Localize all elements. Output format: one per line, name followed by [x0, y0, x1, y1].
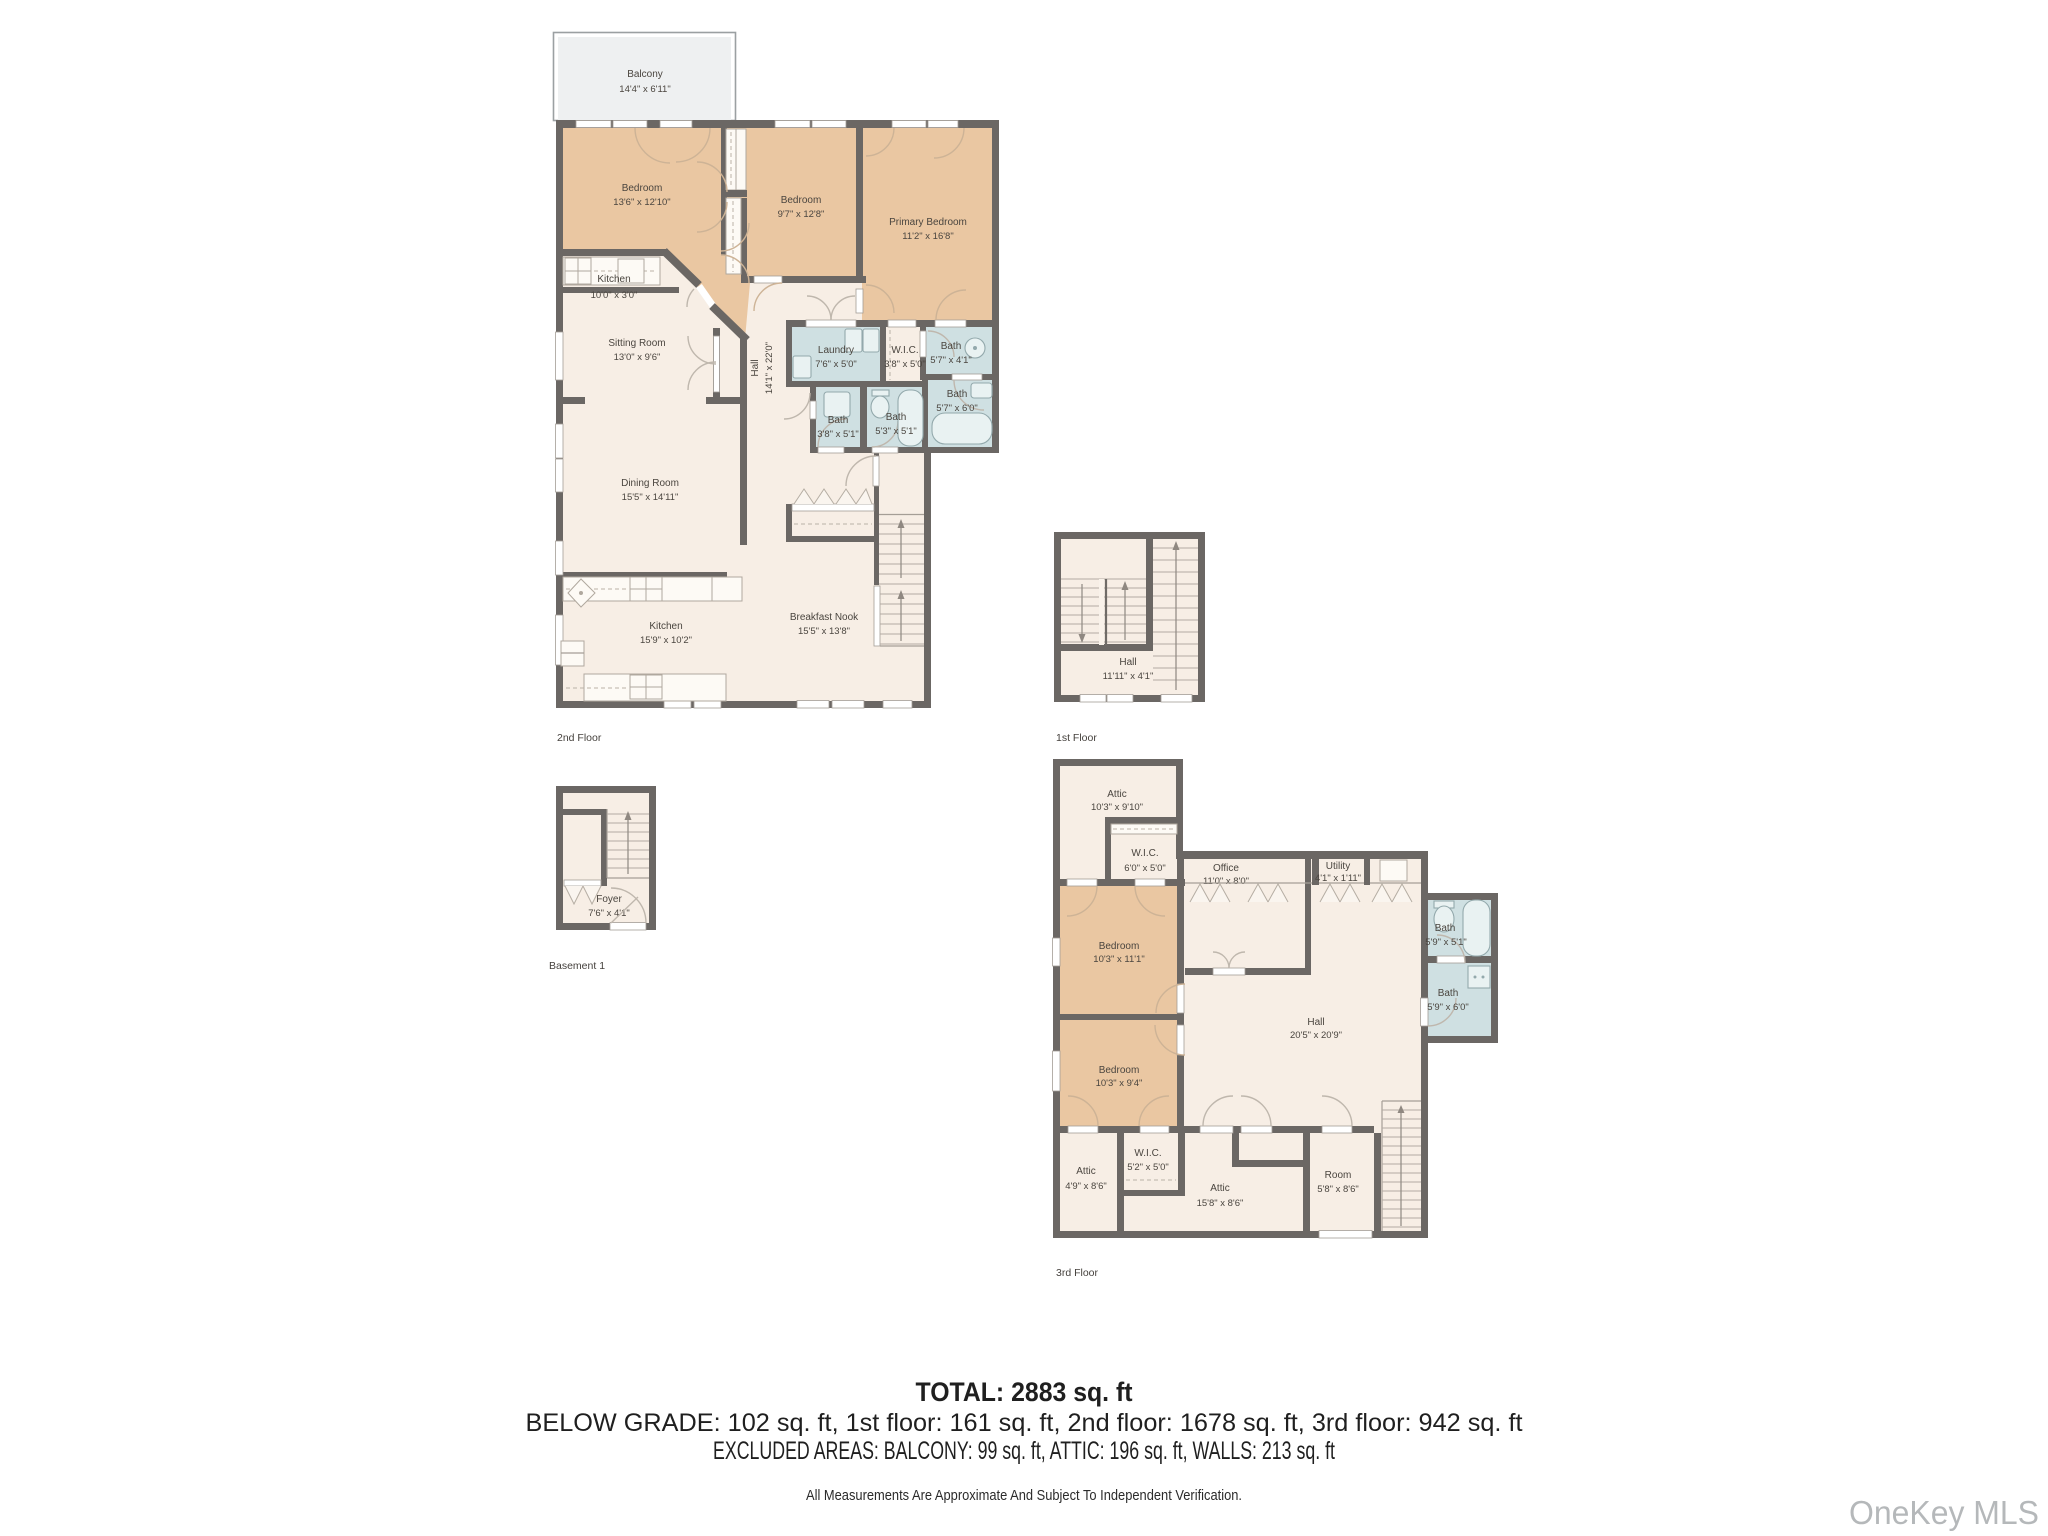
svg-text:Attic: Attic: [1076, 1166, 1095, 1177]
svg-text:13'0" x 9'6": 13'0" x 9'6": [614, 352, 661, 363]
svg-text:Bath: Bath: [941, 341, 962, 352]
svg-text:1st Floor: 1st Floor: [1056, 732, 1097, 744]
svg-text:5'7" x 6'0": 5'7" x 6'0": [936, 403, 978, 414]
svg-text:14'1" x 22'0": 14'1" x 22'0": [764, 342, 775, 394]
svg-text:5'7" x 4'1": 5'7" x 4'1": [930, 355, 972, 366]
svg-text:Room: Room: [1325, 1170, 1352, 1181]
svg-text:TOTAL: 2883 sq. ft: TOTAL: 2883 sq. ft: [916, 1377, 1133, 1407]
svg-text:Dining Room: Dining Room: [621, 478, 679, 489]
svg-text:Basement 1: Basement 1: [549, 960, 605, 972]
svg-text:5'9" x 5'1": 5'9" x 5'1": [1425, 937, 1467, 948]
svg-text:3'8" x 5'1": 3'8" x 5'1": [817, 429, 859, 440]
svg-text:15'9" x 10'2": 15'9" x 10'2": [640, 635, 692, 646]
svg-text:Bath: Bath: [947, 389, 968, 400]
svg-text:5'3" x 5'1": 5'3" x 5'1": [875, 426, 917, 437]
svg-text:15'5" x 13'8": 15'5" x 13'8": [798, 626, 850, 637]
svg-text:11'2" x 16'8": 11'2" x 16'8": [902, 231, 953, 242]
svg-text:Hall: Hall: [1307, 1017, 1324, 1028]
svg-text:Bath: Bath: [1435, 923, 1456, 934]
svg-text:Sitting Room: Sitting Room: [608, 338, 665, 349]
svg-text:Kitchen: Kitchen: [597, 274, 630, 285]
svg-text:6'0" x 5'0": 6'0" x 5'0": [1124, 863, 1166, 874]
svg-text:14'4" x 6'11": 14'4" x 6'11": [619, 84, 670, 95]
svg-text:13'6" x 12'10": 13'6" x 12'10": [613, 197, 670, 208]
svg-text:OneKey MLS: OneKey MLS: [1849, 1494, 2039, 1531]
svg-text:Bedroom: Bedroom: [1099, 1065, 1140, 1076]
svg-text:Bedroom: Bedroom: [1099, 941, 1140, 952]
svg-text:Bedroom: Bedroom: [781, 195, 822, 206]
svg-text:EXCLUDED AREAS: BALCONY: 99 sq: EXCLUDED AREAS: BALCONY: 99 sq. ft, ATTI…: [713, 1437, 1335, 1465]
svg-text:10'0" x 3'0": 10'0" x 3'0": [591, 290, 638, 301]
svg-text:Office: Office: [1213, 863, 1239, 874]
svg-text:2nd Floor: 2nd Floor: [557, 732, 602, 744]
svg-text:4'9" x 8'6": 4'9" x 8'6": [1065, 1181, 1107, 1192]
svg-text:All Measurements Are Approxima: All Measurements Are Approximate And Sub…: [806, 1487, 1242, 1504]
svg-text:7'6" x 4'1": 7'6" x 4'1": [588, 908, 630, 919]
svg-text:Bath: Bath: [1438, 988, 1459, 999]
svg-text:W.I.C.: W.I.C.: [1131, 848, 1158, 859]
svg-text:Bath: Bath: [886, 412, 907, 423]
svg-text:Bath: Bath: [828, 415, 849, 426]
svg-text:Primary Bedroom: Primary Bedroom: [889, 217, 967, 228]
svg-text:4'1" x 1'11": 4'1" x 1'11": [1315, 873, 1361, 884]
svg-text:Foyer: Foyer: [596, 894, 622, 905]
svg-text:Utility: Utility: [1326, 861, 1350, 872]
svg-text:3rd Floor: 3rd Floor: [1056, 1267, 1099, 1279]
svg-text:10'3" x 9'4": 10'3" x 9'4": [1096, 1078, 1143, 1089]
svg-text:W.I.C.: W.I.C.: [891, 345, 918, 356]
svg-text:10'3" x 9'10": 10'3" x 9'10": [1091, 802, 1143, 813]
svg-text:Breakfast Nook: Breakfast Nook: [790, 612, 859, 623]
svg-text:5'9" x 6'0": 5'9" x 6'0": [1427, 1002, 1469, 1013]
svg-text:Balcony: Balcony: [627, 69, 663, 80]
svg-text:W.I.C.: W.I.C.: [1134, 1148, 1161, 1159]
svg-text:5'2" x 5'0": 5'2" x 5'0": [1127, 1162, 1169, 1173]
svg-text:3'8" x 5'0": 3'8" x 5'0": [884, 359, 926, 370]
svg-text:11'11" x 4'1": 11'11" x 4'1": [1103, 671, 1154, 682]
svg-text:Hall: Hall: [1119, 657, 1136, 668]
svg-text:Kitchen: Kitchen: [649, 621, 682, 632]
svg-text:Hall: Hall: [750, 359, 761, 376]
svg-text:Attic: Attic: [1210, 1183, 1229, 1194]
svg-text:10'3" x 11'1": 10'3" x 11'1": [1093, 954, 1144, 965]
svg-text:15'8" x 8'6": 15'8" x 8'6": [1197, 1198, 1244, 1209]
svg-text:11'0" x 8'0": 11'0" x 8'0": [1203, 876, 1249, 887]
svg-text:15'5" x 14'11": 15'5" x 14'11": [622, 492, 679, 503]
svg-text:Laundry: Laundry: [818, 345, 854, 356]
svg-text:BELOW GRADE: 102 sq. ft, 1st f: BELOW GRADE: 102 sq. ft, 1st floor: 161 …: [526, 1409, 1523, 1437]
svg-text:20'5" x 20'9": 20'5" x 20'9": [1290, 1030, 1342, 1041]
svg-text:5'8" x 8'6": 5'8" x 8'6": [1317, 1184, 1359, 1195]
svg-text:7'6" x 5'0": 7'6" x 5'0": [815, 359, 857, 370]
svg-text:Attic: Attic: [1107, 789, 1126, 800]
svg-text:Bedroom: Bedroom: [622, 183, 663, 194]
svg-text:9'7" x 12'8": 9'7" x 12'8": [778, 209, 825, 220]
